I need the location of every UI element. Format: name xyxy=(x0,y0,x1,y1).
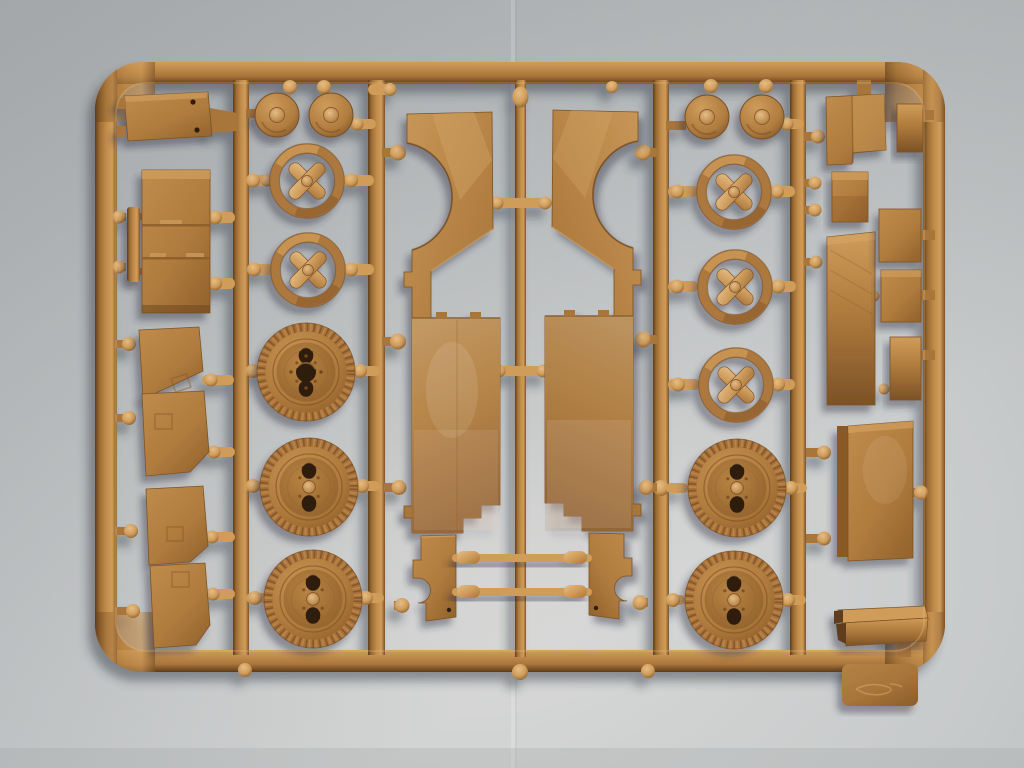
runner-3 xyxy=(653,80,669,655)
hub-cap-disc-2 xyxy=(309,93,353,137)
tire-1 xyxy=(257,323,355,421)
small-panel-part-a xyxy=(897,104,923,152)
door-panel-part-3 xyxy=(146,486,208,565)
small-panel-part-d xyxy=(890,337,921,400)
mounting-plate-part xyxy=(117,92,212,141)
visor-bar-part xyxy=(834,606,928,646)
center-rod-top-ball xyxy=(513,87,529,108)
tire-3 xyxy=(264,550,362,648)
side-rail-strip-part xyxy=(127,207,140,282)
hub-cap-disc-4 xyxy=(740,95,784,139)
tall-panel-part xyxy=(827,232,875,405)
cube-block-part xyxy=(832,172,868,222)
photo-of-model-kit-sprue xyxy=(0,0,1024,768)
small-panel-part-b xyxy=(879,209,921,262)
runner-4 xyxy=(790,80,806,655)
hub-cap-disc-3 xyxy=(685,95,729,139)
stowage-box-part xyxy=(837,421,913,561)
door-panel-part-4 xyxy=(150,563,210,648)
tire-2 xyxy=(260,438,358,536)
tire-4 xyxy=(688,439,786,537)
small-panel-part-c xyxy=(881,270,921,322)
tire-5 xyxy=(685,551,783,649)
hub-cap-disc-1 xyxy=(255,93,299,137)
sprue-id-tab xyxy=(842,664,918,706)
sprue-photo-canvas xyxy=(0,0,1024,768)
